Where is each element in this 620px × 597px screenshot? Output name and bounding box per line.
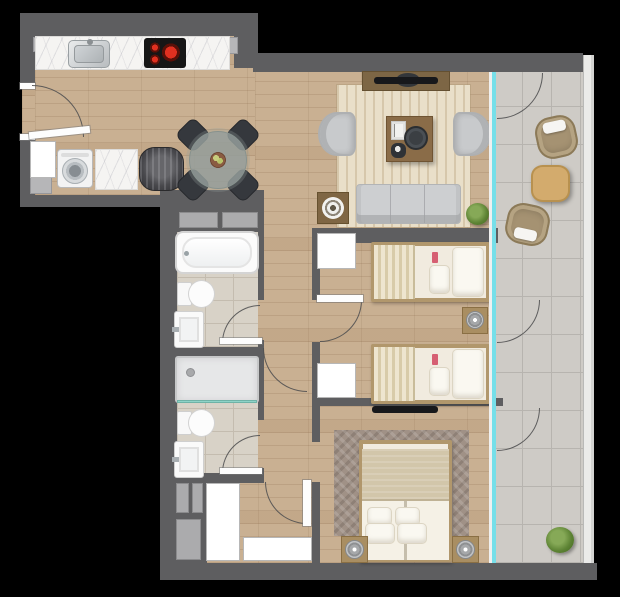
master-blanket [362, 449, 449, 501]
shaft-bath-top-a [179, 212, 218, 228]
balcony-table [531, 165, 570, 202]
wall-kitchen-top [20, 13, 258, 36]
bed1-blanket [374, 245, 415, 299]
column-entry [30, 177, 52, 194]
decor-bowl [391, 143, 406, 158]
side-table-decor [322, 197, 344, 219]
tv-master [372, 406, 438, 413]
lamp-bedroom [466, 311, 484, 329]
shaft-bottom-b [192, 483, 203, 513]
door-leaf-bedroom [317, 295, 363, 302]
shower [175, 356, 259, 403]
plant-living [466, 203, 489, 225]
kitchen-counter [35, 36, 230, 70]
washing-machine [57, 149, 93, 188]
shaft-bath-top-b [222, 212, 258, 228]
window-glass-wall [492, 72, 496, 563]
bed1-pillow-large [452, 247, 484, 297]
sink-bath1 [174, 311, 204, 348]
toilet-bath1 [177, 280, 215, 308]
closet-hall [206, 483, 240, 561]
toilet-bath2 [177, 409, 215, 437]
shaft-bottom-c [176, 519, 201, 560]
closet-hall-2 [243, 537, 312, 561]
stove-cooktop [144, 38, 186, 68]
closet-bedroom-1 [317, 233, 356, 269]
bed2-blanket [374, 347, 415, 401]
cabinet-entry [30, 141, 56, 178]
shaft-bottom-a [176, 483, 189, 513]
tv-living [374, 77, 438, 84]
shower-glass [177, 400, 257, 403]
bed1-pillow-small [429, 265, 450, 294]
armchair-left [318, 112, 356, 156]
sink-bath2 [174, 441, 204, 478]
bed2-pillow-large [452, 349, 484, 399]
bed1-tag [432, 252, 438, 263]
door-leaf-bath1 [220, 338, 262, 344]
balcony-railing [583, 55, 594, 563]
door-leaf-master [303, 480, 311, 526]
wall-bottom-outer [160, 563, 597, 580]
wall-living-top [253, 53, 583, 72]
decor-tray [404, 126, 428, 150]
closet-bedroom-2 [317, 363, 356, 398]
bed2-pillow-small [429, 367, 450, 396]
master-pillow-3 [365, 523, 395, 544]
wall-master-left-a [312, 406, 320, 442]
bed2-tag [432, 354, 438, 365]
plant-balcony [546, 527, 574, 553]
sofa [356, 184, 461, 224]
bathtub [175, 231, 259, 274]
fruit-bowl [210, 152, 226, 168]
floor-plan [0, 0, 620, 597]
master-pillow-4 [397, 523, 427, 544]
wall-entry-bottom [20, 195, 165, 207]
kitchen-sink [68, 40, 110, 68]
wall-master-left-b [312, 482, 320, 563]
door-leaf-bath2 [220, 468, 262, 474]
lamp-master-left [345, 540, 364, 559]
armchair-right [453, 112, 491, 156]
lamp-master-right [456, 540, 475, 559]
laundry-counter [95, 149, 138, 190]
